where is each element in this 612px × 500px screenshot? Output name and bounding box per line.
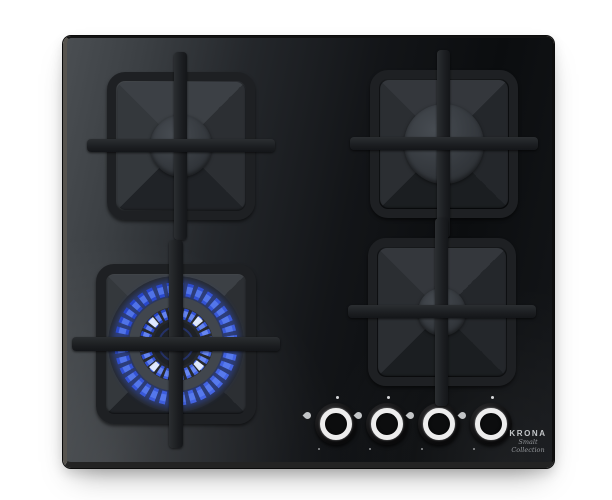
burner-rear-left [93,58,269,234]
flame-max-icon [303,411,313,421]
pan-support-bar-horizontal [72,337,280,351]
pan-support-bar-horizontal [348,305,536,318]
pan-support-bar-horizontal [87,139,275,152]
pan-support-bar-horizontal [350,137,538,150]
brand-logo: KRONA Smalt Collection [505,429,551,454]
flame-min-dot [318,448,320,450]
burner-front-right [354,224,530,400]
control-knob-1 [315,403,357,445]
flame-min-dot [473,448,475,450]
brand-tagline: Smalt Collection [505,438,551,454]
control-knob-3 [418,403,460,445]
control-knob-2 [366,403,408,445]
knob-ring [371,408,403,440]
brand-name: KRONA [505,429,551,438]
hob-glass-surface: KRONA Smalt Collection [63,36,554,468]
knob-ring [423,408,455,440]
flame-min-dot [369,448,371,450]
knob-off-dot [336,396,339,399]
knob-ring [475,408,507,440]
product-photo-gas-hob: KRONA Smalt Collection [0,0,612,500]
knob-off-dot [387,396,390,399]
knob-off-dot [491,396,494,399]
knob-ring [320,408,352,440]
burner-rear-right [356,56,532,232]
burner-front-left-wok-lit [78,246,274,442]
flame-min-dot [421,448,423,450]
